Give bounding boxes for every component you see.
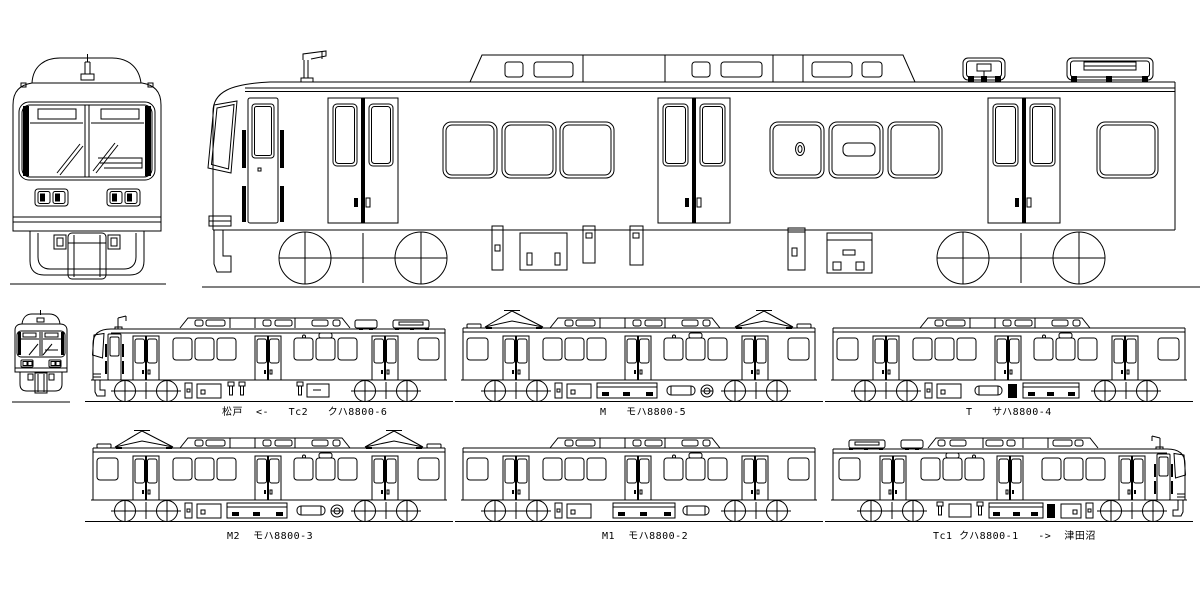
- side-sign: [843, 143, 875, 156]
- car-label-tc2: 松戸 <- Tc2 クハ8800-6: [222, 407, 387, 419]
- bogie-front: [279, 232, 447, 284]
- car-diagram-tc2: [85, 308, 453, 404]
- pantograph: [365, 431, 423, 447]
- drawing-sheet: 松戸 <- Tc2 クハ8800-6 M モハ8800-5 T サハ8800-4…: [0, 0, 1200, 600]
- car-diagram-t: [825, 308, 1193, 404]
- skirt-coupler: [13, 217, 161, 279]
- front-body: [13, 83, 161, 231]
- front-view-large-drawing: [8, 45, 168, 290]
- cab-front: [208, 101, 237, 272]
- roof-equipment-boxes: [963, 58, 1153, 82]
- car-diagram-m: [455, 308, 823, 404]
- car-label-t: T サハ8800-4: [966, 407, 1052, 419]
- passenger-door-3: [988, 98, 1060, 223]
- wiper-right: [96, 145, 118, 173]
- car-label-m2: M2 モハ8800-3: [227, 531, 313, 543]
- car-drawing-t: [825, 318, 1193, 402]
- car-drawing-tc2: [85, 316, 453, 402]
- car-drawing-m2: [85, 431, 453, 522]
- car-drawing-tc1: [825, 436, 1193, 522]
- passenger-door-2: [658, 98, 730, 223]
- car-label-m1: M1 モハ8800-2: [602, 531, 688, 543]
- pantograph: [115, 431, 173, 447]
- passenger-door-1: [328, 98, 398, 223]
- roof-antenna: [301, 51, 326, 82]
- pantograph: [735, 311, 793, 327]
- cab-door: [242, 98, 284, 223]
- car-drawing-m1: [455, 438, 823, 522]
- wiper-left: [60, 146, 83, 175]
- side-windows: [443, 122, 1158, 178]
- destination-sign-right: [101, 109, 139, 119]
- bogie-rear: [937, 232, 1105, 284]
- side-view-large-drawing: [200, 40, 1200, 290]
- underfloor-equipment: [492, 226, 872, 273]
- roof-monitor: [470, 55, 915, 82]
- destination-sign-left: [38, 109, 76, 119]
- car-diagram-m1: [455, 428, 823, 524]
- car-label-m: M モハ8800-5: [600, 407, 686, 419]
- car-label-tc1: Tc1 クハ8800-1 -> 津田沼: [933, 531, 1096, 543]
- side-view-large: [200, 40, 1200, 290]
- pantograph: [485, 311, 543, 327]
- front-view-large: [8, 45, 168, 290]
- side-speaker: [796, 143, 805, 156]
- front-view-small-drawing: [12, 310, 70, 404]
- car-diagram-tc1: [825, 428, 1193, 524]
- car-diagram-m2: [85, 428, 453, 524]
- car-drawing-m: [455, 311, 823, 402]
- front-view-small: [12, 310, 70, 404]
- headlights: [35, 189, 140, 206]
- roof-dome: [21, 54, 153, 87]
